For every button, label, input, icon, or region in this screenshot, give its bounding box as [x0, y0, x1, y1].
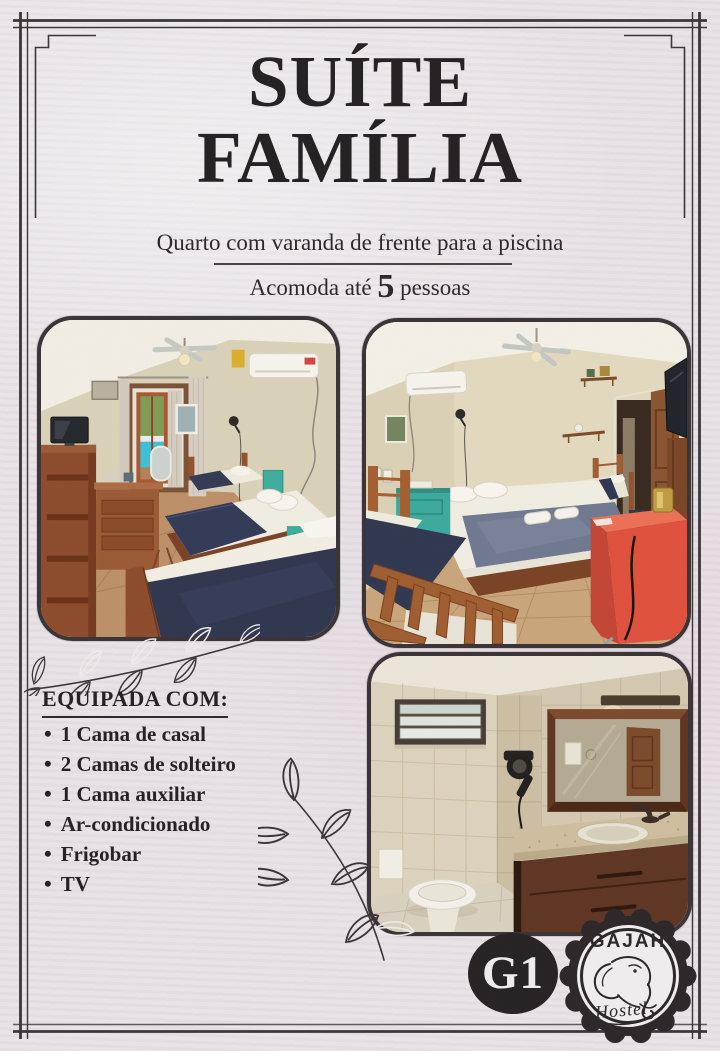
bullet-icon: •	[44, 723, 52, 745]
page-title: SUÍTE FAMÍLIA	[0, 44, 720, 196]
photo-bedroom-pool-view	[37, 316, 340, 641]
wall-picture-left	[92, 381, 118, 399]
ac-unit	[406, 370, 467, 395]
list-item: •Frigobar	[44, 843, 236, 865]
wall-picture	[177, 405, 197, 433]
equipment-heading: EQUIPADA COM:	[42, 686, 228, 718]
leaf-branch-icon	[24, 612, 260, 696]
list-item: •2 Camas de solteiro	[44, 753, 236, 775]
equipment-list: •1 Cama de casal •2 Camas de solteiro •1…	[44, 723, 236, 903]
bookshelf	[41, 445, 96, 637]
logo-brand-text: GAJAH	[590, 931, 667, 952]
bullet-icon: •	[44, 873, 52, 895]
photo-bedroom-minibar	[362, 318, 691, 648]
equipment-item-label: Ar-condicionado	[61, 813, 211, 835]
equipment-item-label: TV	[61, 873, 90, 895]
flyer-poster: SUÍTE FAMÍLIA Quarto com varanda de fren…	[0, 0, 720, 1051]
subtitle: Quarto com varanda de frente para a pisc…	[0, 230, 720, 256]
leaf-branch-icon	[258, 742, 424, 964]
title-line-1: SUÍTE	[0, 44, 720, 120]
hostel-logo: GAJAH Hostel	[556, 902, 704, 1051]
equipment-item-label: Frigobar	[61, 843, 141, 865]
equipment-item-label: 1 Cama de casal	[61, 723, 206, 745]
wall-picture	[386, 416, 406, 442]
bullet-icon: •	[44, 813, 52, 835]
bullet-icon: •	[44, 753, 52, 775]
room-code-label: G1	[482, 946, 544, 1000]
tv	[51, 417, 88, 446]
equipment-item-label: 1 Cama auxiliar	[61, 783, 206, 805]
capacity-line: Acomoda até 5 pessoas	[0, 269, 720, 305]
bullet-icon: •	[44, 783, 52, 805]
list-item: •TV	[44, 873, 236, 895]
list-item: •1 Cama de casal	[44, 723, 236, 745]
capacity-number: 5	[377, 268, 394, 305]
capacity-suffix: pessoas	[394, 275, 470, 300]
equipment-item-label: 2 Camas de solteiro	[61, 753, 236, 775]
room-code-badge: G1	[468, 933, 558, 1014]
list-item: •Ar-condicionado	[44, 813, 236, 835]
subtitle-divider	[214, 263, 512, 265]
mirror	[151, 447, 171, 481]
bullet-icon: •	[44, 843, 52, 865]
vanity-mirror	[547, 709, 688, 812]
title-line-2: FAMÍLIA	[0, 120, 720, 196]
capacity-prefix: Acomoda até	[250, 275, 378, 300]
list-item: •1 Cama auxiliar	[44, 783, 236, 805]
tv	[665, 358, 687, 438]
